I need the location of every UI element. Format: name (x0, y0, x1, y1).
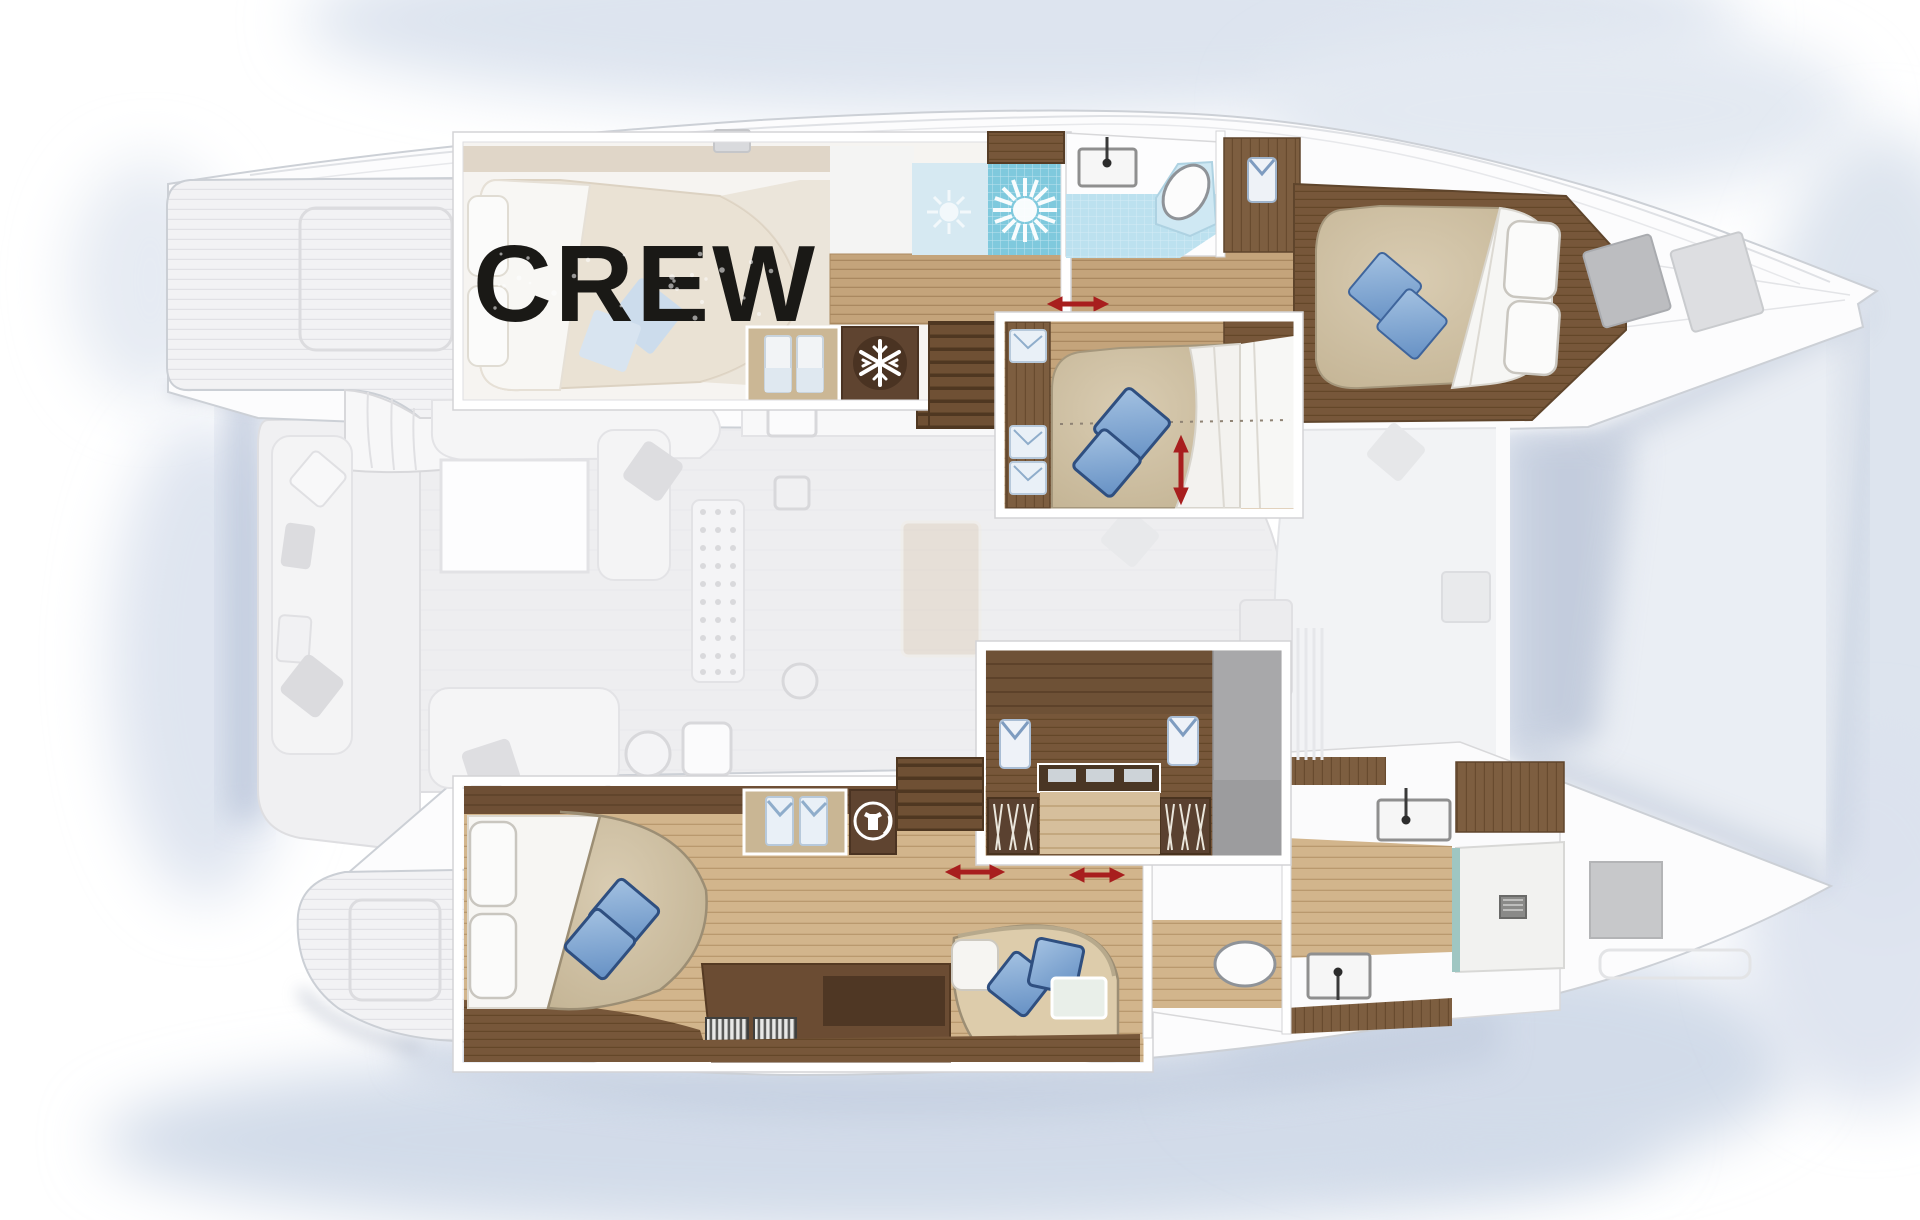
svg-text:CREW: CREW (473, 223, 818, 345)
